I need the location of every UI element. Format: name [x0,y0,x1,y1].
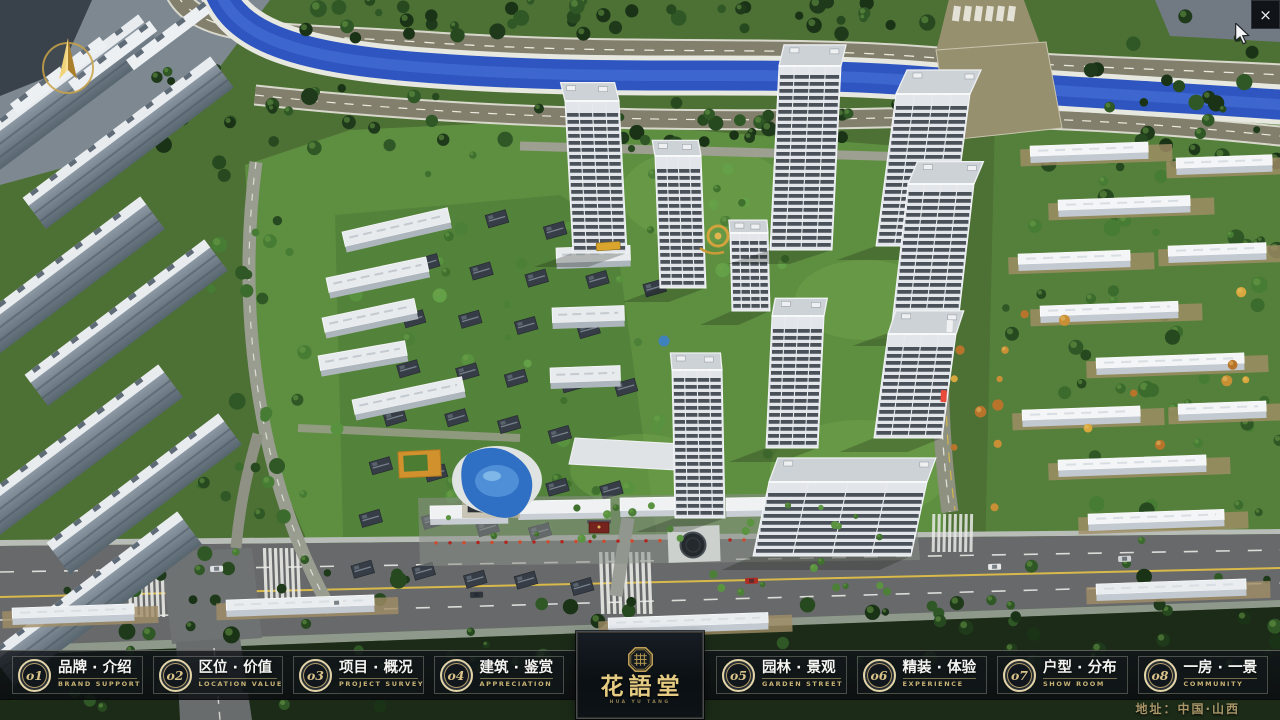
nav-item-title: 建筑 · 鉴赏 [480,661,554,677]
nav-number-medallion: o6 [863,659,896,692]
nav-number-medallion: o2 [159,659,192,692]
logo-seal-icon [627,646,654,673]
nav-item-subtitle: COMMUNITY [1184,678,1258,690]
nav-item-title: 品牌 · 介绍 [58,661,137,677]
site-plan-graphics [0,0,1280,720]
nav-item-subtitle: PROJECT SURVEY [339,678,418,690]
nav-item-subtitle: APPRECIATION [480,678,554,690]
nav-number-medallion: o8 [1144,659,1177,692]
nav-group-left: o1 品牌 · 介绍 BRAND SUPPORT o2 区位 · 价值 LOCA… [0,656,576,694]
nav-item-title: 项目 · 概况 [339,661,418,677]
nav-item-o5[interactable]: o5 园林 · 景观 GARDEN STREET [716,656,847,694]
nav-item-o8[interactable]: o8 一房 · 一景 COMMUNITY [1138,656,1269,694]
nav-item-o2[interactable]: o2 区位 · 价值 LOCATION VALUE [153,656,284,694]
nav-item-o7[interactable]: o7 户型 · 分布 SHOW ROOM [997,656,1128,694]
logo-tagline: HUA YU TANG [610,700,671,705]
nav-item-title: 精装 · 体验 [903,661,977,677]
site-plan-3d-view[interactable] [0,0,1280,720]
logo-panel[interactable]: 花語堂 HUA YU TANG [576,631,704,719]
nav-number-medallion: o7 [1003,659,1036,692]
nav-item-subtitle: GARDEN STREET [762,678,841,690]
nav-number-medallion: o4 [440,659,473,692]
nav-item-title: 园林 · 景观 [762,661,841,677]
nav-item-subtitle: EXPERIENCE [903,678,977,690]
nav-item-subtitle: LOCATION VALUE [199,678,278,690]
nav-item-title: 区位 · 价值 [199,661,278,677]
logo-name: 花語堂 [596,675,685,698]
nav-number-medallion: o3 [299,659,332,692]
close-button[interactable]: × [1251,0,1280,29]
nav-item-subtitle: BRAND SUPPORT [58,678,137,690]
nav-item-subtitle: SHOW ROOM [1043,678,1117,690]
nav-item-o1[interactable]: o1 品牌 · 介绍 BRAND SUPPORT [12,656,143,694]
app-window: × o1 品牌 · 介绍 BRAND SUPPORT o2 区位 · 价值 LO… [0,0,1280,720]
nav-group-right: o5 园林 · 景观 GARDEN STREET o6 精装 · 体验 EXPE… [704,656,1280,694]
nav-number-medallion: o5 [722,659,755,692]
nav-item-o3[interactable]: o3 项目 · 概况 PROJECT SURVEY [293,656,424,694]
nav-item-o4[interactable]: o4 建筑 · 鉴赏 APPRECIATION [434,656,565,694]
project-address: 地址：中国·山西 [1135,700,1240,717]
nav-number-medallion: o1 [18,659,51,692]
bottom-navbar: o1 品牌 · 介绍 BRAND SUPPORT o2 区位 · 价值 LOCA… [0,650,1280,700]
nav-item-title: 一房 · 一景 [1184,661,1258,677]
nav-item-o6[interactable]: o6 精装 · 体验 EXPERIENCE [857,656,988,694]
nav-item-title: 户型 · 分布 [1043,661,1117,677]
